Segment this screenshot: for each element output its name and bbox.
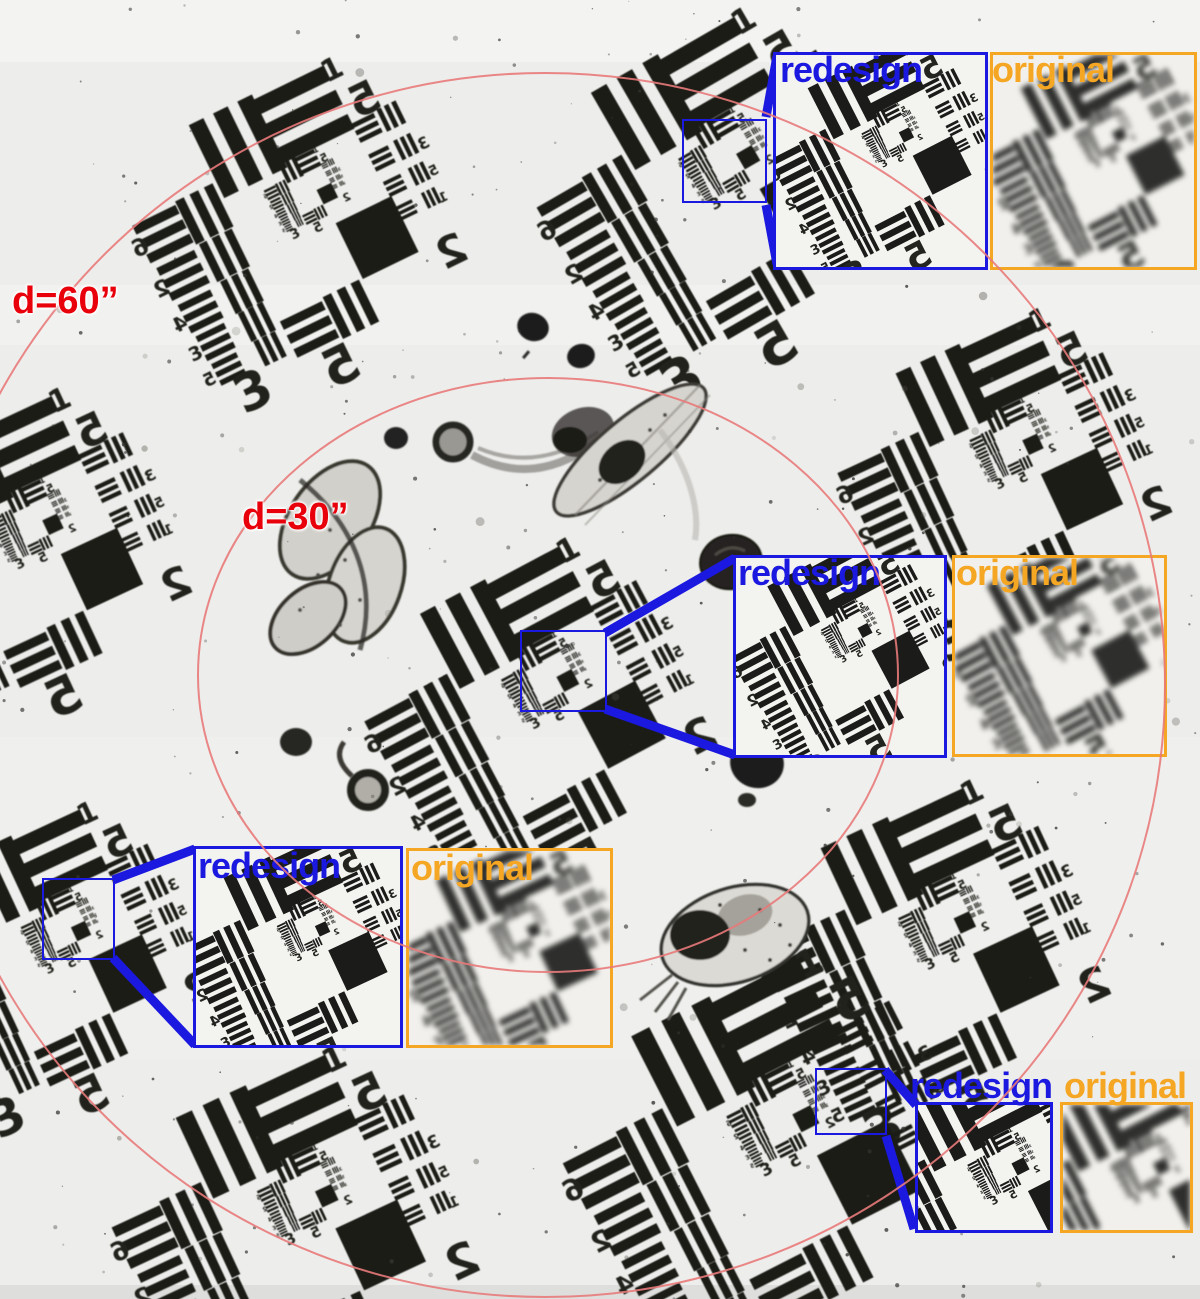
inset-content [918,1105,1050,1230]
redesign-label-top-right: redesign [780,52,922,88]
source-box-left [42,878,115,960]
source-box-top-right [682,119,767,203]
redesign-label-bottom-right: redesign [910,1068,1052,1104]
inset-redesign-bottom-right [915,1102,1053,1233]
distance-label-d30: d=30” [242,498,349,536]
original-label-bottom-right: original [1064,1068,1186,1104]
original-label-left: original [411,850,533,886]
original-label-middle-right: original [956,555,1078,591]
distance-label-d60: d=60” [12,282,119,320]
original-label-top-right: original [992,52,1114,88]
inset-original-bottom-right [1060,1102,1193,1233]
source-box-bottom-right [815,1068,887,1135]
source-box-middle-right [520,630,607,712]
figure-canvas: 1 5 6 2 4 3 5 [0,0,1200,1299]
redesign-label-left: redesign [198,848,340,884]
redesign-label-middle-right: redesign [738,555,880,591]
inset-content [1063,1105,1190,1230]
